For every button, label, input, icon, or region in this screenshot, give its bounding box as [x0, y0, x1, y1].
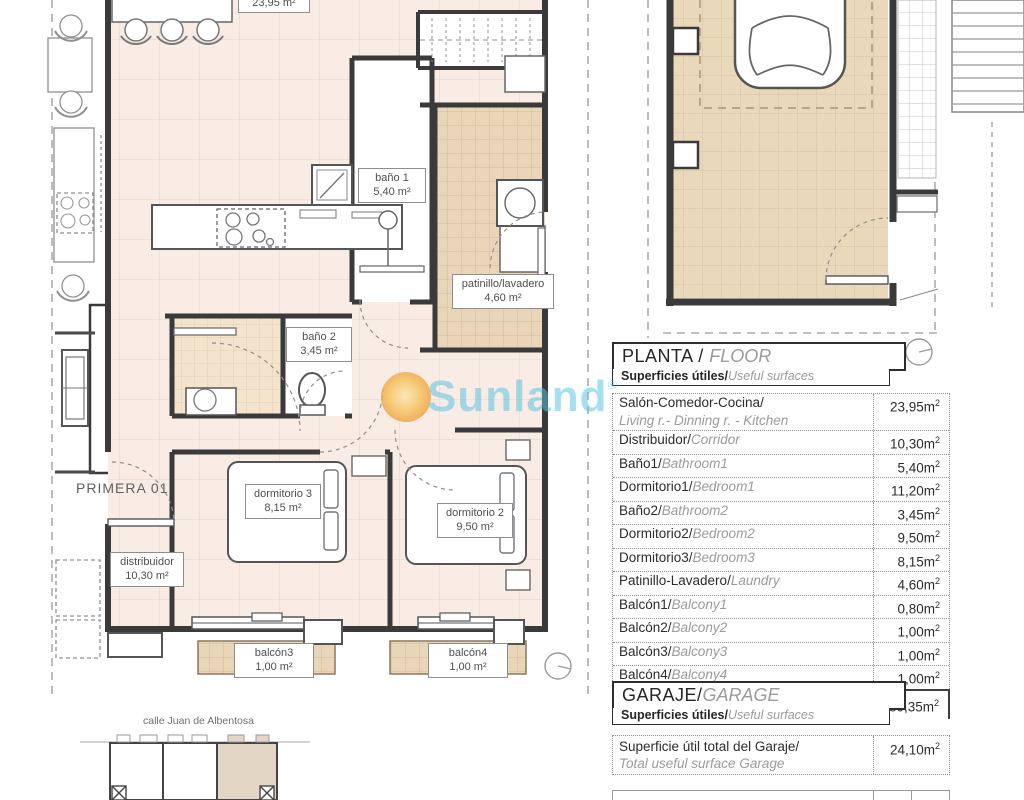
partial-table [612, 790, 950, 800]
planta-row: Dormitorio1/Bedroom111,20m2 [613, 478, 949, 502]
planta-table: Salón-Comedor-Cocina/Living r.- Dinning … [612, 393, 950, 719]
stair-block [952, 0, 1024, 112]
label-bano2: baño 23,45 m² [286, 327, 352, 362]
planta-row: Patinillo-Lavadero/Laundry4,60m2 [613, 572, 949, 596]
car [735, 0, 845, 88]
label-dormitorio3: dormitorio 38,15 m² [245, 484, 321, 519]
garaje-header: GARAJE/GARAGE [612, 681, 906, 710]
row-value: 23,95m2 [873, 394, 949, 430]
street-label: calle Juan de Albentosa [143, 715, 254, 727]
label-distribuidor: distribuidor10,30 m² [110, 552, 184, 587]
label-dormitorio2: dormitorio 29,50 m² [437, 503, 513, 538]
planta-row: Dormitorio2/Bedroom29,50m2 [613, 525, 949, 549]
label-patinillo: patinillo/lavadero4,60 m² [452, 274, 554, 309]
label-balcon4: balcón41,00 m² [428, 643, 508, 678]
planta-row: Balcón3/Balcony31,00m2 [613, 643, 949, 667]
row-value: 4,60m2 [873, 572, 949, 595]
label-salon-area: 23,95 m² [238, 0, 310, 13]
label-bano1: baño 15,40 m² [358, 168, 426, 203]
planta-row: Baño2/Bathroom23,45m2 [613, 502, 949, 526]
row-value: 1,00m2 [873, 643, 949, 666]
entrance-label: PRIMERA 01 [76, 480, 168, 496]
row-label: Dormitorio2/Bedroom2 [613, 525, 873, 548]
planta-header: PLANTA / FLOOR [612, 342, 906, 371]
row-label: Baño2/Bathroom2 [613, 502, 873, 525]
planta-row: Distribuidor/Corridor10,30m2 [613, 431, 949, 455]
planta-row: Balcón1/Balcony10,80m2 [613, 596, 949, 620]
planta-row: Balcón2/Balcony21,00m2 [613, 619, 949, 643]
planta-row: Dormitorio3/Bedroom38,15m2 [613, 549, 949, 573]
garaje-total-label: Superficie útil total del Garaje/Total u… [613, 736, 873, 774]
row-value: 8,15m2 [873, 549, 949, 572]
row-label: Patinillo-Lavadero/Laundry [613, 572, 873, 595]
garaje-table: Superficie útil total del Garaje/Total u… [612, 735, 950, 775]
garaje-subheader: Superficies útiles/Useful surfaces [612, 708, 890, 725]
planta-subheader: Superficies útiles/Useful surfaces [612, 369, 890, 386]
row-value: 9,50m2 [873, 525, 949, 548]
row-label: Distribuidor/Corridor [613, 431, 873, 454]
row-label: Baño1/Bathroom1 [613, 455, 873, 478]
planta-row: Baño1/Bathroom15,40m2 [613, 455, 949, 479]
row-value: 3,45m2 [873, 502, 949, 525]
row-value: 0,80m2 [873, 596, 949, 619]
elevator-core [55, 305, 112, 473]
row-value: 5,40m2 [873, 455, 949, 478]
door-leaves [108, 519, 174, 526]
garage-plan [666, 0, 938, 306]
planta-row: Salón-Comedor-Cocina/Living r.- Dinning … [613, 394, 949, 431]
floorplan-sheet: 23,95 m² baño 15,40 m² patinillo/lavader… [0, 0, 1024, 800]
site-plan [80, 735, 310, 800]
row-value: 10,30m2 [873, 431, 949, 454]
row-value: 11,20m2 [873, 478, 949, 501]
garaje-total-value: 24,10m2 [873, 736, 949, 774]
row-label: Dormitorio1/Bedroom1 [613, 478, 873, 501]
row-label: Balcón3/Balcony3 [613, 643, 873, 666]
row-value: 1,00m2 [873, 619, 949, 642]
row-label: Balcón2/Balcony2 [613, 619, 873, 642]
row-label: Dormitorio3/Bedroom3 [613, 549, 873, 572]
label-balcon3: balcón31,00 m² [234, 643, 314, 678]
garaje-total-row: Superficie útil total del Garaje/Total u… [613, 736, 949, 774]
row-label: Salón-Comedor-Cocina/Living r.- Dinning … [613, 394, 873, 430]
row-label: Balcón1/Balcony1 [613, 596, 873, 619]
